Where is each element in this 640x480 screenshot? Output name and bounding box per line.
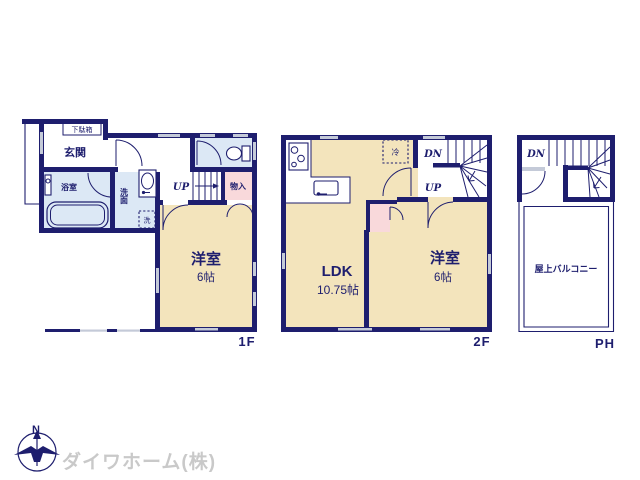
stairs-1f bbox=[193, 172, 219, 200]
floor-ph-doors bbox=[522, 167, 545, 194]
stairs-up-1f-label: UP bbox=[173, 182, 190, 193]
ldk-label: LDK bbox=[322, 263, 353, 280]
toilet bbox=[227, 146, 251, 161]
floor-2f-label: 2F bbox=[473, 334, 490, 349]
kitchen-sink bbox=[314, 181, 338, 196]
stairs-ph bbox=[549, 140, 610, 197]
floor-plan-drawing: 下駄箱 玄関 浴室 洗面 洗 UP 物入 洋室 6帖 1F bbox=[0, 0, 640, 480]
floor-2f-room-fills bbox=[286, 140, 487, 327]
stairs-dn-2f-label: DN bbox=[423, 149, 443, 160]
shower-unit bbox=[45, 175, 51, 195]
stairs-up-2f-label: UP bbox=[425, 183, 442, 194]
bathroom-label: 浴室 bbox=[61, 182, 77, 192]
floor-2f-plan: 冷 DN UP LDK 10.75帖 洋室 6帖 2F bbox=[281, 135, 492, 349]
floor-1f-plan: 下駄箱 玄関 浴室 洗面 洗 UP 物入 洋室 6帖 1F bbox=[22, 119, 257, 349]
stairs-dn-ph-label: DN bbox=[526, 149, 546, 160]
floor-ph-plan: DN 屋上バルコニー PH bbox=[517, 135, 615, 351]
floor-ph-label: PH bbox=[595, 336, 615, 351]
roof-balcony-label: 屋上バルコニー bbox=[535, 263, 598, 274]
compass-north-label: N bbox=[32, 424, 40, 436]
floor-plan-page: 下駄箱 玄関 浴室 洗面 洗 UP 物入 洋室 6帖 1F bbox=[0, 0, 640, 480]
washer-label: 洗 bbox=[144, 216, 151, 225]
compass: N bbox=[14, 424, 60, 471]
company-watermark: ダイワホーム(株) bbox=[62, 450, 216, 473]
floor-1f-label: 1F bbox=[238, 334, 255, 349]
shoe-box-label: 下駄箱 bbox=[72, 125, 93, 134]
wash-basin bbox=[139, 170, 156, 197]
washroom-label: 洗面 bbox=[120, 187, 129, 205]
western-room-2f-label: 洋室 bbox=[430, 249, 460, 267]
western-room-1f-size: 6帖 bbox=[197, 270, 215, 284]
storage-label: 物入 bbox=[230, 181, 246, 191]
stove bbox=[289, 143, 308, 170]
refrigerator-label: 冷 bbox=[392, 147, 400, 157]
western-room-1f-label: 洋室 bbox=[191, 250, 221, 268]
western-room-2f-size: 6帖 bbox=[434, 270, 452, 284]
ldk-size: 10.75帖 bbox=[317, 282, 359, 297]
entrance-label: 玄関 bbox=[64, 145, 86, 159]
